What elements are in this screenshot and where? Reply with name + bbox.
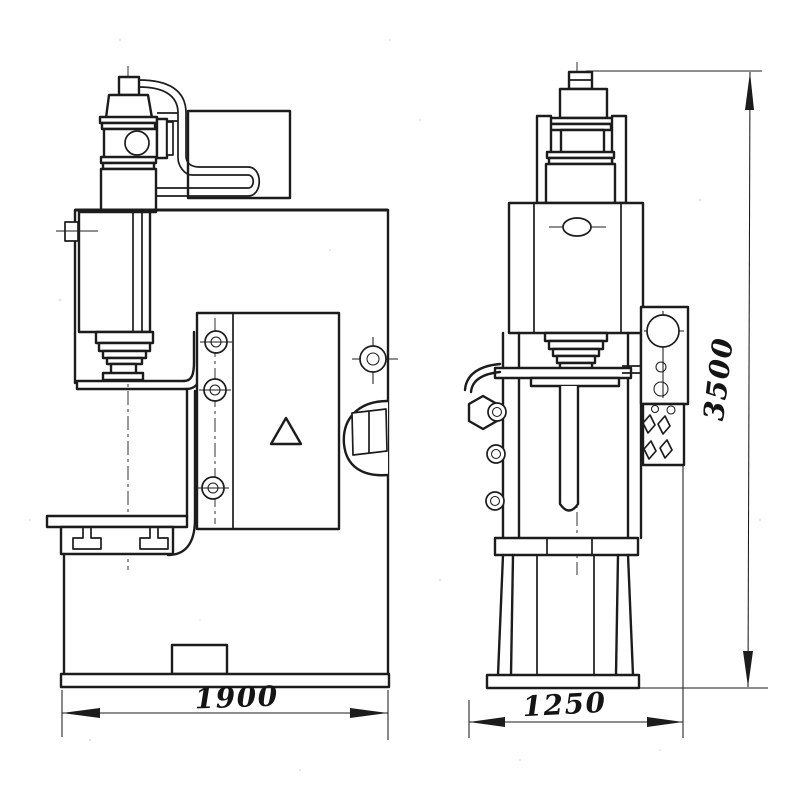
- stand: [487, 538, 639, 688]
- top-fitting: [119, 77, 139, 95]
- dim-label-1250: 1250: [522, 686, 608, 723]
- table-block: [61, 527, 173, 554]
- side-view: 1250 3500: [465, 62, 768, 738]
- table-top-plate: [47, 516, 187, 527]
- cylinder-valve-assembly: [100, 77, 173, 212]
- dim-arrow-left: [62, 708, 100, 718]
- main-cylinder-block: [79, 212, 150, 332]
- column-bolt: [488, 403, 506, 421]
- front-view: 1900: [47, 66, 398, 740]
- column-bolt: [486, 492, 504, 510]
- dim-arrow-up: [745, 72, 754, 110]
- ball-element: [125, 131, 149, 155]
- cross-plate: [495, 368, 631, 378]
- dimension-front-width: 1900: [62, 680, 388, 740]
- cylinder-stack: [537, 72, 626, 203]
- ram-assembly: [96, 332, 153, 380]
- cylinder-head: [101, 169, 156, 212]
- dim-arrow-down: [743, 651, 753, 687]
- frame-bolt-crosshair: [352, 337, 398, 384]
- gauge-dial: [647, 315, 679, 347]
- press-main-body: [509, 203, 643, 333]
- dim-arrow-left: [469, 717, 505, 727]
- stand-table: [495, 538, 638, 555]
- dim-label-3500: 3500: [697, 335, 740, 422]
- column-bolt: [487, 445, 505, 463]
- oil-tank-box: [188, 111, 290, 198]
- front-door-panel: [197, 313, 339, 529]
- ram-rod: [560, 386, 578, 511]
- cross-plate-lower: [531, 378, 619, 386]
- machine-base: [61, 554, 389, 687]
- base-step-block: [172, 645, 227, 674]
- stand-legs: [498, 555, 633, 675]
- washer-stack: [545, 333, 607, 369]
- door-latch: [344, 401, 388, 475]
- dim-arrow-right: [647, 717, 683, 727]
- dim-label-1900: 1900: [194, 680, 279, 716]
- drawing-sheet: 1900: [0, 0, 800, 807]
- work-table: [47, 516, 187, 554]
- press-two-view-drawing: 1900: [0, 0, 800, 807]
- stand-base-plate: [487, 675, 639, 688]
- ram-foot: [103, 373, 143, 380]
- valve-cap: [106, 95, 152, 118]
- sight-glass-oval: [563, 218, 591, 236]
- dim-arrow-right: [350, 708, 388, 718]
